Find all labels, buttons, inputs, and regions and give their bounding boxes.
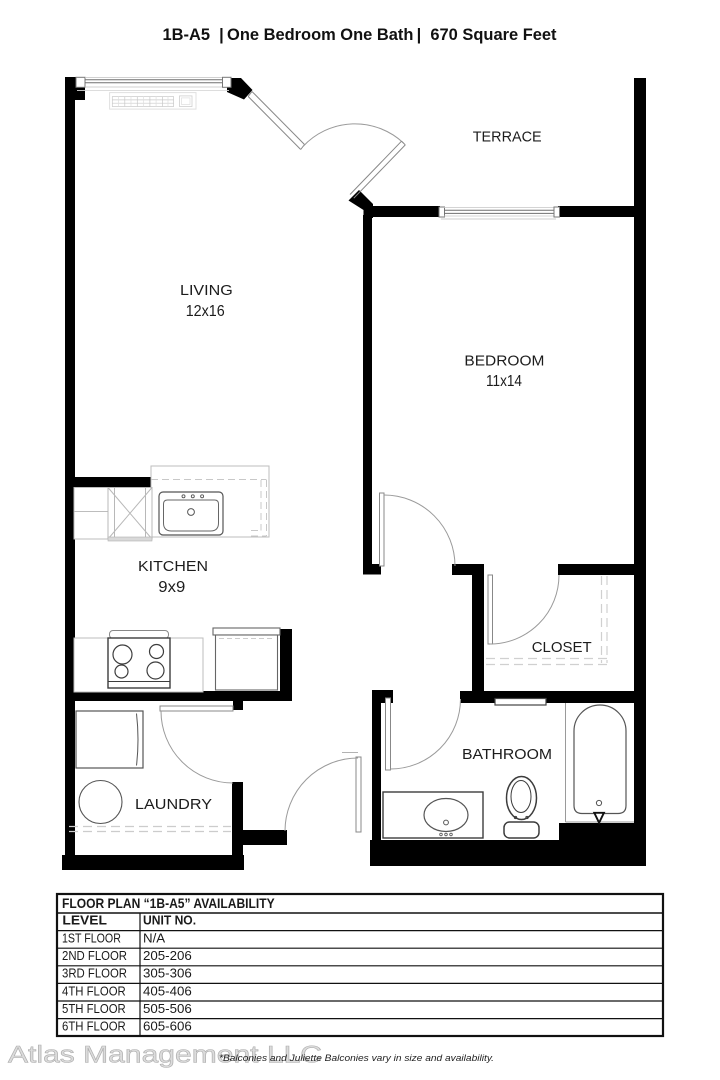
- svg-text:2ND FLOOR: 2ND FLOOR: [62, 948, 127, 963]
- svg-text:UNIT NO.: UNIT NO.: [143, 912, 196, 928]
- svg-text:LEVEL: LEVEL: [62, 913, 107, 928]
- svg-text:*Balconies and Juliette Balcon: *Balconies and Juliette Balconies vary i…: [219, 1053, 494, 1063]
- svg-text:LIVING: LIVING: [180, 282, 233, 299]
- svg-text:605-606: 605-606: [143, 1019, 192, 1034]
- svg-text:305-306: 305-306: [143, 966, 192, 981]
- svg-text:5TH FLOOR: 5TH FLOOR: [62, 1001, 126, 1016]
- svg-text:N/A: N/A: [143, 931, 165, 946]
- svg-text:FLOOR PLAN “1B-A5” AVAILABILIT: FLOOR PLAN “1B-A5” AVAILABILITY: [62, 895, 275, 911]
- svg-text:205-206: 205-206: [143, 948, 192, 963]
- svg-text:BATHROOM: BATHROOM: [462, 746, 552, 763]
- svg-text:4TH FLOOR: 4TH FLOOR: [62, 983, 126, 998]
- svg-text:KITCHEN: KITCHEN: [138, 558, 208, 575]
- svg-text:LAUNDRY: LAUNDRY: [135, 796, 212, 813]
- svg-text:BEDROOM: BEDROOM: [464, 353, 544, 370]
- svg-text:405-406: 405-406: [143, 983, 192, 998]
- svg-text:1B-A5 | One Bedroom One Bath: 1B-A5 | One Bedroom One Bath | 670 Squar…: [163, 25, 557, 44]
- svg-text:CLOSET: CLOSET: [532, 639, 592, 656]
- svg-text:3RD FLOOR: 3RD FLOOR: [62, 966, 127, 981]
- svg-text:1ST FLOOR: 1ST FLOOR: [62, 930, 121, 945]
- svg-text:12x16: 12x16: [186, 303, 225, 320]
- svg-text:TERRACE: TERRACE: [473, 129, 542, 146]
- svg-text:6TH FLOOR: 6TH FLOOR: [62, 1019, 126, 1034]
- svg-text:9x9: 9x9: [158, 579, 185, 596]
- svg-text:11x14: 11x14: [486, 373, 522, 390]
- svg-text:505-506: 505-506: [143, 1001, 192, 1016]
